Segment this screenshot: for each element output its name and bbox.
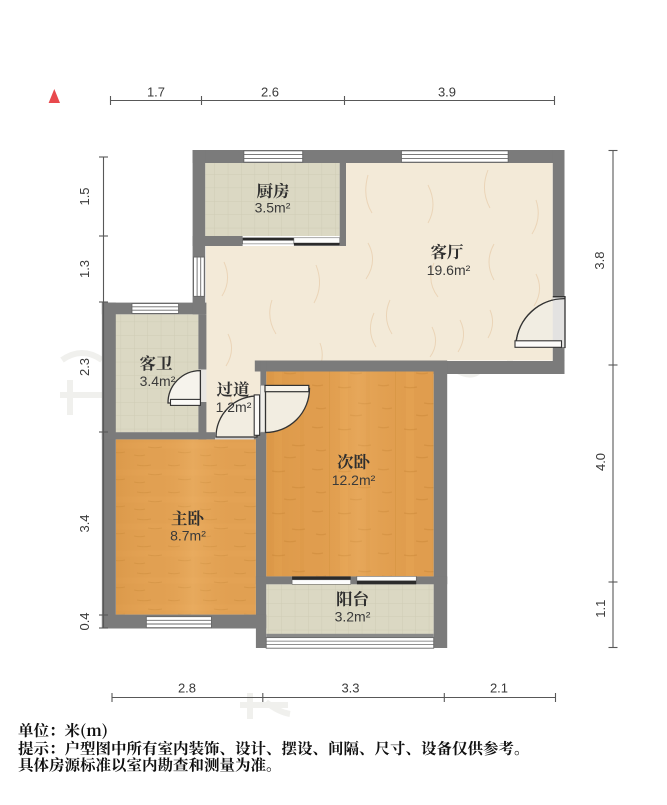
svg-text:19.6m²: 19.6m² xyxy=(427,262,471,278)
svg-text:3.9: 3.9 xyxy=(438,85,456,100)
svg-text:1.5: 1.5 xyxy=(77,187,92,205)
svg-text:3.2m²: 3.2m² xyxy=(335,609,371,625)
svg-text:2.1: 2.1 xyxy=(490,681,508,696)
svg-text:3.8: 3.8 xyxy=(592,252,607,270)
svg-text:12.2m²: 12.2m² xyxy=(332,472,376,488)
svg-text:2.8: 2.8 xyxy=(178,681,196,696)
svg-text:1.1: 1.1 xyxy=(593,600,608,618)
svg-text:1.2m²: 1.2m² xyxy=(216,399,252,415)
svg-text:3.4: 3.4 xyxy=(77,514,92,532)
svg-text:2.3: 2.3 xyxy=(77,358,92,376)
svg-text:2.6: 2.6 xyxy=(261,85,279,100)
svg-text:8.7m²: 8.7m² xyxy=(170,528,206,544)
svg-text:3.4m²: 3.4m² xyxy=(140,373,176,389)
svg-text:1.7: 1.7 xyxy=(147,85,165,100)
svg-text:0.4: 0.4 xyxy=(77,612,92,630)
svg-text:4.0: 4.0 xyxy=(593,453,608,471)
svg-text:3.5m²: 3.5m² xyxy=(255,200,291,216)
svg-text:1.3: 1.3 xyxy=(77,260,92,278)
svg-text:3.3: 3.3 xyxy=(341,681,359,696)
